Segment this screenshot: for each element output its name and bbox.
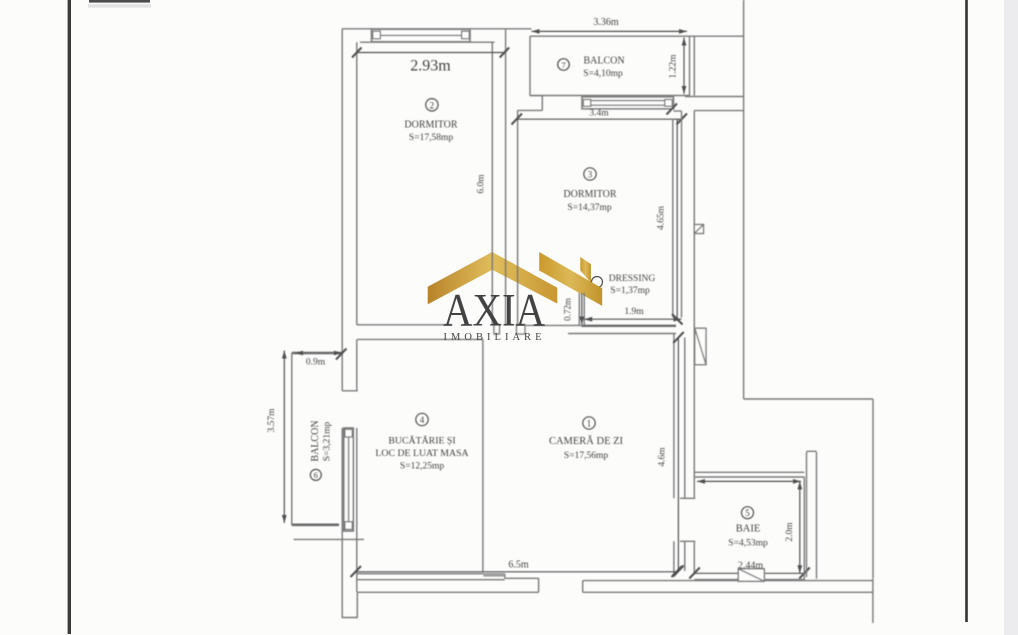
svg-text:BAIE: BAIE bbox=[736, 524, 761, 535]
svg-text:3: 3 bbox=[588, 170, 593, 180]
svg-text:0.9m: 0.9m bbox=[306, 358, 326, 368]
svg-text:S=17,58mp: S=17,58mp bbox=[409, 133, 453, 143]
svg-text:S=4,10mp: S=4,10mp bbox=[583, 69, 623, 79]
svg-text:S=1,37mp: S=1,37mp bbox=[610, 286, 650, 296]
svg-text:1.22m: 1.22m bbox=[669, 54, 679, 79]
svg-text:3.57m: 3.57m bbox=[267, 408, 277, 433]
svg-text:2: 2 bbox=[430, 100, 435, 110]
svg-text:S=12,25mp: S=12,25mp bbox=[400, 462, 444, 472]
svg-text:DRESSING: DRESSING bbox=[609, 274, 656, 284]
svg-text:4.6m: 4.6m bbox=[658, 447, 668, 467]
svg-text:CAMERĂ DE ZI: CAMERĂ DE ZI bbox=[549, 435, 624, 447]
svg-text:2.0m: 2.0m bbox=[785, 522, 795, 542]
svg-text:3.4m: 3.4m bbox=[589, 109, 609, 119]
svg-text:6.5m: 6.5m bbox=[508, 560, 529, 571]
svg-text:S=17,56mp: S=17,56mp bbox=[564, 451, 608, 461]
svg-text:4.65m: 4.65m bbox=[657, 205, 667, 230]
svg-text:S=14,37mp: S=14,37mp bbox=[567, 203, 611, 213]
svg-text:3.36m: 3.36m bbox=[593, 17, 619, 28]
svg-text:S=3,21mp: S=3,21mp bbox=[323, 422, 333, 462]
svg-text:1.9m: 1.9m bbox=[624, 307, 644, 317]
svg-text:5: 5 bbox=[745, 508, 750, 518]
svg-text:6: 6 bbox=[314, 470, 318, 480]
svg-text:BALCON: BALCON bbox=[583, 56, 624, 67]
svg-text:2.93m: 2.93m bbox=[410, 58, 451, 75]
svg-text:LOC DE LUAT MASA: LOC DE LUAT MASA bbox=[375, 448, 468, 459]
svg-text:2.44m: 2.44m bbox=[738, 561, 764, 572]
svg-text:7: 7 bbox=[561, 60, 565, 70]
svg-text:0.72m: 0.72m bbox=[563, 298, 573, 321]
svg-text:4: 4 bbox=[420, 415, 425, 425]
svg-text:AXIA: AXIA bbox=[443, 284, 545, 336]
svg-text:BUCĂTĂRIE ȘI: BUCĂTĂRIE ȘI bbox=[388, 435, 455, 447]
svg-text:DORMITOR: DORMITOR bbox=[404, 120, 457, 131]
svg-text:DORMITOR: DORMITOR bbox=[563, 189, 616, 200]
svg-text:S=4,53mp: S=4,53mp bbox=[728, 539, 768, 549]
svg-text:BALCON: BALCON bbox=[310, 420, 321, 461]
svg-text:1: 1 bbox=[587, 419, 592, 429]
svg-text:6.0m: 6.0m bbox=[477, 174, 487, 194]
